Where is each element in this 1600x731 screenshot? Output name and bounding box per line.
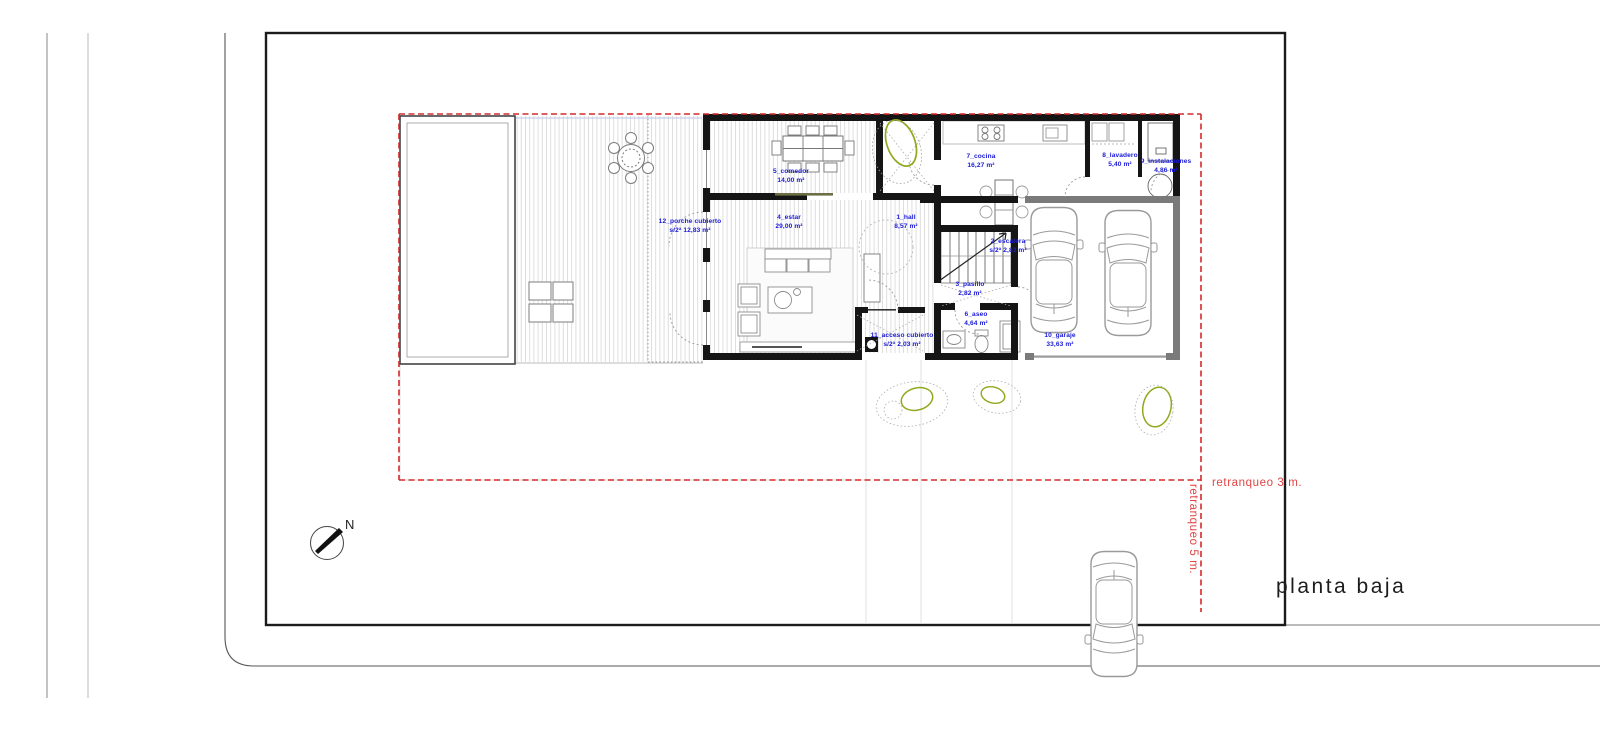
tree-garden-1 xyxy=(873,377,950,431)
car-garage-2 xyxy=(1099,211,1157,336)
room-name: 12_porche cubierto xyxy=(659,218,722,227)
room-area: s/2ª 2,83 m² xyxy=(989,247,1026,256)
room-label-comedor: 5_comedor 14,00 m² xyxy=(773,168,809,185)
floor-plan-drawing xyxy=(0,0,1600,731)
room-area: s/2ª 2,03 m² xyxy=(871,341,934,350)
room-area: 8,57 m² xyxy=(894,223,917,232)
pool xyxy=(400,116,515,364)
room-area: s/2ª 12,83 m² xyxy=(659,227,722,236)
room-name: 2_escalera xyxy=(989,238,1026,247)
garden-path-lines xyxy=(400,360,1012,624)
compass-needle xyxy=(315,528,343,554)
room-name: 7_cocina xyxy=(966,153,995,162)
room-area: 2,82 m² xyxy=(955,290,984,299)
room-name: 6_aseo xyxy=(964,311,987,320)
room-label-escalera: 2_escalera s/2ª 2,83 m² xyxy=(989,238,1026,255)
room-area: 4,86 m² xyxy=(1141,167,1192,176)
car-garage-1 xyxy=(1025,208,1083,333)
room-label-aseo: 6_aseo 4,64 m² xyxy=(964,311,987,328)
setback-label-front: retranqueo 3 m. xyxy=(1212,477,1302,489)
tree-courtyard xyxy=(880,116,923,171)
room-label-garaje: 10_garaje 33,63 m² xyxy=(1044,332,1075,349)
room-name: 11_acceso cubierto xyxy=(871,332,934,341)
room-name: 1_hall xyxy=(894,214,917,223)
room-label-pasillo: 3_pasillo 2,82 m² xyxy=(955,281,984,298)
room-label-lavadero: 8_lavadero 5,40 m² xyxy=(1102,152,1137,169)
room-area: 4,64 m² xyxy=(964,320,987,329)
setback-label-side: retranqueo 5 m. xyxy=(1187,484,1199,574)
room-name: 4_estar xyxy=(775,214,802,223)
tree-garden-3 xyxy=(1139,385,1175,430)
cars xyxy=(1025,208,1157,677)
floor-plan-canvas: 1_hall 8,57 m² 2_escalera s/2ª 2,83 m² 3… xyxy=(0,0,1600,731)
car-street xyxy=(1085,552,1143,677)
room-name: 8_lavadero xyxy=(1102,152,1137,161)
room-label-estar: 4_estar 29,00 m² xyxy=(775,214,802,231)
room-area: 14,00 m² xyxy=(773,177,809,186)
room-label-instalaciones: 9_instalaciones 4,86 m² xyxy=(1141,158,1192,175)
room-area: 33,63 m² xyxy=(1044,341,1075,350)
room-label-porche: 12_porche cubierto s/2ª 12,83 m² xyxy=(659,218,722,235)
room-label-cocina: 7_cocina 16,27 m² xyxy=(966,153,995,170)
room-name: 5_comedor xyxy=(773,168,809,177)
compass-north-label: N xyxy=(345,517,354,532)
room-area: 29,00 m² xyxy=(775,223,802,232)
stairs xyxy=(939,228,1011,283)
plan-title: planta baja xyxy=(1276,575,1406,599)
room-area: 16,27 m² xyxy=(966,162,995,171)
room-area: 5,40 m² xyxy=(1102,161,1137,170)
room-name: 3_pasillo xyxy=(955,281,984,290)
tree-garden-2 xyxy=(971,377,1024,417)
room-label-acceso: 11_acceso cubierto s/2ª 2,03 m² xyxy=(871,332,934,349)
room-name: 10_garaje xyxy=(1044,332,1075,341)
room-label-hall: 1_hall 8,57 m² xyxy=(894,214,917,231)
compass xyxy=(311,527,344,560)
room-name: 9_instalaciones xyxy=(1141,158,1192,167)
